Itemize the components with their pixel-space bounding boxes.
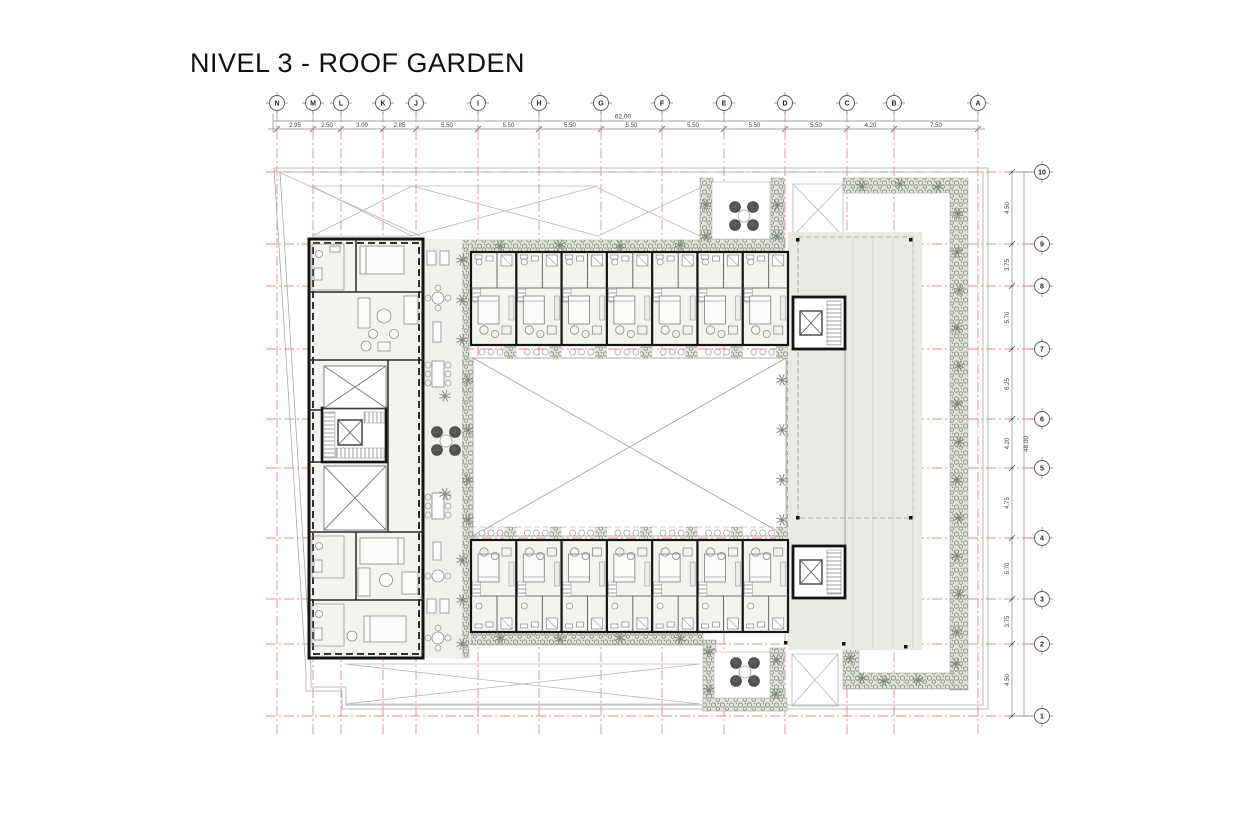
closet <box>518 582 526 596</box>
kitchenette <box>781 562 786 586</box>
dimension-label: 5.50 <box>687 123 699 129</box>
vegetation-bed <box>703 698 787 711</box>
left-stair-core <box>322 408 386 462</box>
top-dimension-strip: 62.002.952.503.002.855.505.505.505.505.5… <box>268 114 985 134</box>
tree-dark <box>749 658 760 669</box>
kitchenette <box>600 562 605 586</box>
grid-marker: 1 <box>1031 705 1053 727</box>
balcony-table <box>660 530 666 536</box>
dimension-label: 4.75 <box>1005 497 1011 509</box>
tree-dark <box>748 220 759 231</box>
balcony-table <box>488 530 494 536</box>
tree-dark <box>730 202 741 213</box>
grid-marker: 7 <box>1031 338 1053 360</box>
kitchenette <box>645 296 650 320</box>
grid-marker: 3 <box>1031 588 1053 610</box>
grid-marker: 9 <box>1031 233 1053 255</box>
tree-dark <box>749 676 760 687</box>
closet <box>744 582 752 596</box>
grid-marker: F <box>651 92 673 114</box>
sink <box>667 622 674 627</box>
bed <box>523 296 544 324</box>
balcony-planter <box>640 346 652 358</box>
toilet <box>567 259 573 265</box>
dimension-label: 5.50 <box>626 123 638 129</box>
grid-marker-label: G <box>598 100 604 107</box>
grid-marker: 2 <box>1031 633 1053 655</box>
dimension-label: 4.20 <box>865 123 877 129</box>
tree-dark <box>450 445 461 456</box>
kitchenette <box>509 296 514 320</box>
kitchenette <box>735 562 740 586</box>
balcony-planter <box>776 527 788 539</box>
dimension-label: 5.50 <box>441 123 453 129</box>
sink <box>622 256 629 261</box>
grid-marker: E <box>713 92 735 114</box>
balcony-planter <box>776 346 788 358</box>
dimension-label: 5.70 <box>1005 311 1011 323</box>
sink <box>531 622 538 627</box>
page-title: NIVEL 3 - ROOF GARDEN <box>190 48 525 79</box>
balcony-table <box>497 349 503 355</box>
row-grid-markers: 10987654321 <box>1031 161 1053 727</box>
balcony-table <box>633 530 639 536</box>
balcony-table <box>615 349 621 355</box>
bed <box>478 296 499 324</box>
grid-marker-label: 6 <box>1040 416 1044 423</box>
balcony-table <box>760 530 766 536</box>
balcony-table <box>497 530 503 536</box>
toilet <box>612 259 618 265</box>
grid-marker-label: 5 <box>1040 465 1044 472</box>
balcony-table <box>524 349 530 355</box>
toilet <box>612 603 618 609</box>
tree-dark <box>432 427 443 438</box>
dimension-label: 4.50 <box>1005 202 1011 214</box>
balcony-planter <box>504 527 516 539</box>
dimension-label: 7.50 <box>930 123 942 129</box>
dimension-label: 4.50 <box>1005 674 1011 686</box>
sink <box>622 622 629 627</box>
grid-marker-label: F <box>660 100 665 107</box>
dimension-label: 3.75 <box>1005 259 1011 271</box>
balcony-table <box>705 530 711 536</box>
kitchenette <box>600 296 605 320</box>
balcony-table <box>769 530 775 536</box>
grid-marker-label: H <box>536 100 541 107</box>
bed <box>659 554 680 582</box>
balcony-table <box>723 530 729 536</box>
grid-marker-label: E <box>722 100 727 107</box>
toilet <box>476 603 482 609</box>
sink <box>712 622 719 627</box>
round-table <box>432 570 444 582</box>
grid-marker: M <box>302 92 324 114</box>
grid-marker: H <box>528 92 550 114</box>
bed <box>569 296 590 324</box>
balcony-table <box>488 349 494 355</box>
balcony-planter <box>550 346 562 358</box>
stair-flight <box>827 301 841 345</box>
vegetation-bed <box>858 673 954 689</box>
kitchenette <box>781 296 786 320</box>
kitchenette <box>735 296 740 320</box>
toilet <box>567 603 573 609</box>
round-table <box>432 292 444 304</box>
closet <box>699 582 707 596</box>
total-dimension-label: 62.00 <box>615 114 632 121</box>
grid-marker-label: B <box>891 100 896 107</box>
balcony-planter <box>640 527 652 539</box>
grid-marker-label: 1 <box>1040 713 1044 720</box>
grid-marker: C <box>836 92 858 114</box>
right-dimension-strip: 4.503.755.706.254.204.755.703.754.5048.0… <box>1005 169 1030 719</box>
dimension-label: 3.00 <box>356 123 368 129</box>
bed <box>659 296 680 324</box>
grid-marker-label: 2 <box>1040 641 1044 648</box>
grid-marker-label: 10 <box>1038 169 1046 176</box>
balcony-table <box>751 349 757 355</box>
grid-marker: 5 <box>1031 457 1053 479</box>
grid-marker-label: K <box>380 100 385 107</box>
balcony-table <box>714 530 720 536</box>
balcony-table <box>669 530 675 536</box>
balcony-table <box>678 530 684 536</box>
balcony-table <box>570 349 576 355</box>
grid-marker: I <box>467 92 489 114</box>
tree-dark <box>730 220 741 231</box>
toilet <box>702 259 708 265</box>
grid-marker: K <box>372 92 394 114</box>
bed <box>523 554 544 582</box>
balcony-planter <box>550 527 562 539</box>
balcony-table <box>588 530 594 536</box>
grid-marker: B <box>883 92 905 114</box>
balcony-planter <box>685 527 697 539</box>
sink <box>758 256 765 261</box>
courtyard-void <box>473 358 786 536</box>
kitchenette <box>690 562 695 586</box>
balcony-planter <box>685 346 697 358</box>
planter-circle <box>440 435 452 447</box>
sink <box>758 622 765 627</box>
balcony-planter <box>595 346 607 358</box>
toilet <box>521 603 527 609</box>
toilet <box>657 259 663 265</box>
lounger <box>440 599 449 613</box>
grid-marker-label: 4 <box>1040 535 1044 542</box>
balcony-table <box>705 349 711 355</box>
grid-marker: D <box>774 92 796 114</box>
balcony-table <box>723 349 729 355</box>
balcony-table <box>479 349 485 355</box>
grid-marker: 4 <box>1031 527 1053 549</box>
stair-flight <box>827 550 841 594</box>
dimension-label: 4.20 <box>1005 437 1011 449</box>
closet <box>473 582 481 596</box>
grid-marker-label: M <box>310 100 316 107</box>
toilet <box>657 603 663 609</box>
dimension-label: 5.50 <box>810 123 822 129</box>
toilet <box>748 603 754 609</box>
dimension-label: 6.25 <box>1005 378 1011 390</box>
grid-marker-label: C <box>844 100 849 107</box>
balcony-table <box>760 349 766 355</box>
kitchenette <box>554 562 559 586</box>
dimension-label: 5.50 <box>749 123 761 129</box>
vegetation-bed <box>471 632 703 645</box>
balcony-table <box>714 349 720 355</box>
closet <box>563 582 571 596</box>
grid-marker-label: 7 <box>1040 346 1044 353</box>
dimension-label: 5.50 <box>564 123 576 129</box>
balcony-planter <box>595 527 607 539</box>
total-dimension-label: 48.00 <box>1023 435 1030 452</box>
grid-marker: G <box>590 92 612 114</box>
toilet <box>521 259 527 265</box>
balcony-table <box>542 530 548 536</box>
closet <box>608 582 616 596</box>
toilet <box>476 259 482 265</box>
drawing-sheet: NIVEL 3 - ROOF GARDEN <box>0 0 1250 833</box>
sink <box>577 256 584 261</box>
tree-dark <box>748 202 759 213</box>
balcony-table <box>570 530 576 536</box>
closet <box>654 582 662 596</box>
grid-marker-label: J <box>414 100 418 107</box>
sink <box>486 256 493 261</box>
balcony-table <box>669 349 675 355</box>
balcony-table <box>678 349 684 355</box>
vegetation-bed <box>700 238 784 251</box>
balcony-table <box>524 530 530 536</box>
grid-marker-label: L <box>339 100 344 107</box>
balcony-table <box>579 530 585 536</box>
tree-dark <box>731 676 742 687</box>
planter-circle <box>738 210 750 222</box>
sink <box>577 622 584 627</box>
bed <box>704 296 725 324</box>
balcony-planter <box>731 346 743 358</box>
top-room-band <box>471 252 788 358</box>
lounger <box>440 251 449 265</box>
grid-marker-label: 9 <box>1040 241 1044 248</box>
vegetation-bed <box>843 645 859 689</box>
dining-table <box>432 361 444 387</box>
dimension-label: 3.75 <box>1005 615 1011 627</box>
balcony-table <box>633 349 639 355</box>
planter-circle <box>739 666 751 678</box>
grid-marker: A <box>967 92 989 114</box>
bed <box>569 554 590 582</box>
kitchenette <box>690 296 695 320</box>
balcony-table <box>479 530 485 536</box>
toilet <box>748 259 754 265</box>
tree-dark <box>450 427 461 438</box>
grid-marker-label: A <box>975 100 980 107</box>
grid-marker: N <box>266 92 288 114</box>
balcony-table <box>533 349 539 355</box>
balcony-table <box>769 349 775 355</box>
balcony-table <box>579 349 585 355</box>
column-grid-markers: NMLKJIHGFEDCBA <box>266 92 989 114</box>
floor-plan-svg: NMLKJIHGFEDCBA 62.002.952.503.002.855.50… <box>0 0 1250 833</box>
grid-marker: 10 <box>1031 161 1053 183</box>
vegetation-bed <box>471 240 703 252</box>
grid-marker-label: 8 <box>1040 283 1044 290</box>
kitchenette <box>509 562 514 586</box>
bed <box>614 554 635 582</box>
balcony-table <box>751 530 757 536</box>
sink <box>712 256 719 261</box>
balcony-table <box>542 349 548 355</box>
round-table <box>432 632 444 644</box>
toilet <box>702 603 708 609</box>
stair-core <box>793 297 845 349</box>
sink <box>531 256 538 261</box>
dimension-label: 5.70 <box>1005 562 1011 574</box>
balcony-table <box>660 349 666 355</box>
stair-core <box>793 546 845 598</box>
grid-marker-label: I <box>477 100 479 107</box>
balcony-table <box>624 530 630 536</box>
dimension-label: 5.50 <box>503 123 515 129</box>
stair-flight <box>324 412 335 458</box>
bed <box>750 554 771 582</box>
balcony-table <box>588 349 594 355</box>
kitchenette <box>645 562 650 586</box>
grid-marker: 8 <box>1031 275 1053 297</box>
tree-dark <box>731 658 742 669</box>
lounger <box>427 599 436 613</box>
balcony-planter <box>504 346 516 358</box>
balcony-table <box>624 349 630 355</box>
bed <box>704 554 725 582</box>
lounger <box>427 251 436 265</box>
grid-marker: J <box>405 92 427 114</box>
bed <box>478 554 499 582</box>
balcony-planter <box>731 527 743 539</box>
grid-marker-label: 3 <box>1040 596 1044 603</box>
bed <box>750 296 771 324</box>
bed <box>614 296 635 324</box>
dimension-label: 2.95 <box>289 123 301 129</box>
bottom-room-band <box>471 527 788 632</box>
sink <box>486 622 493 627</box>
grid-marker: L <box>330 92 352 114</box>
balcony-table <box>615 530 621 536</box>
tree-dark <box>432 445 443 456</box>
dimension-label: 2.50 <box>321 123 333 129</box>
vegetation-bed <box>950 178 968 690</box>
dimension-label: 2.85 <box>394 123 406 129</box>
kitchenette <box>554 296 559 320</box>
dining-table <box>432 493 444 519</box>
grid-marker: 6 <box>1031 408 1053 430</box>
grid-marker-label: N <box>274 100 279 107</box>
grid-marker-label: D <box>782 100 787 107</box>
balcony-table <box>533 530 539 536</box>
sink <box>667 256 674 261</box>
